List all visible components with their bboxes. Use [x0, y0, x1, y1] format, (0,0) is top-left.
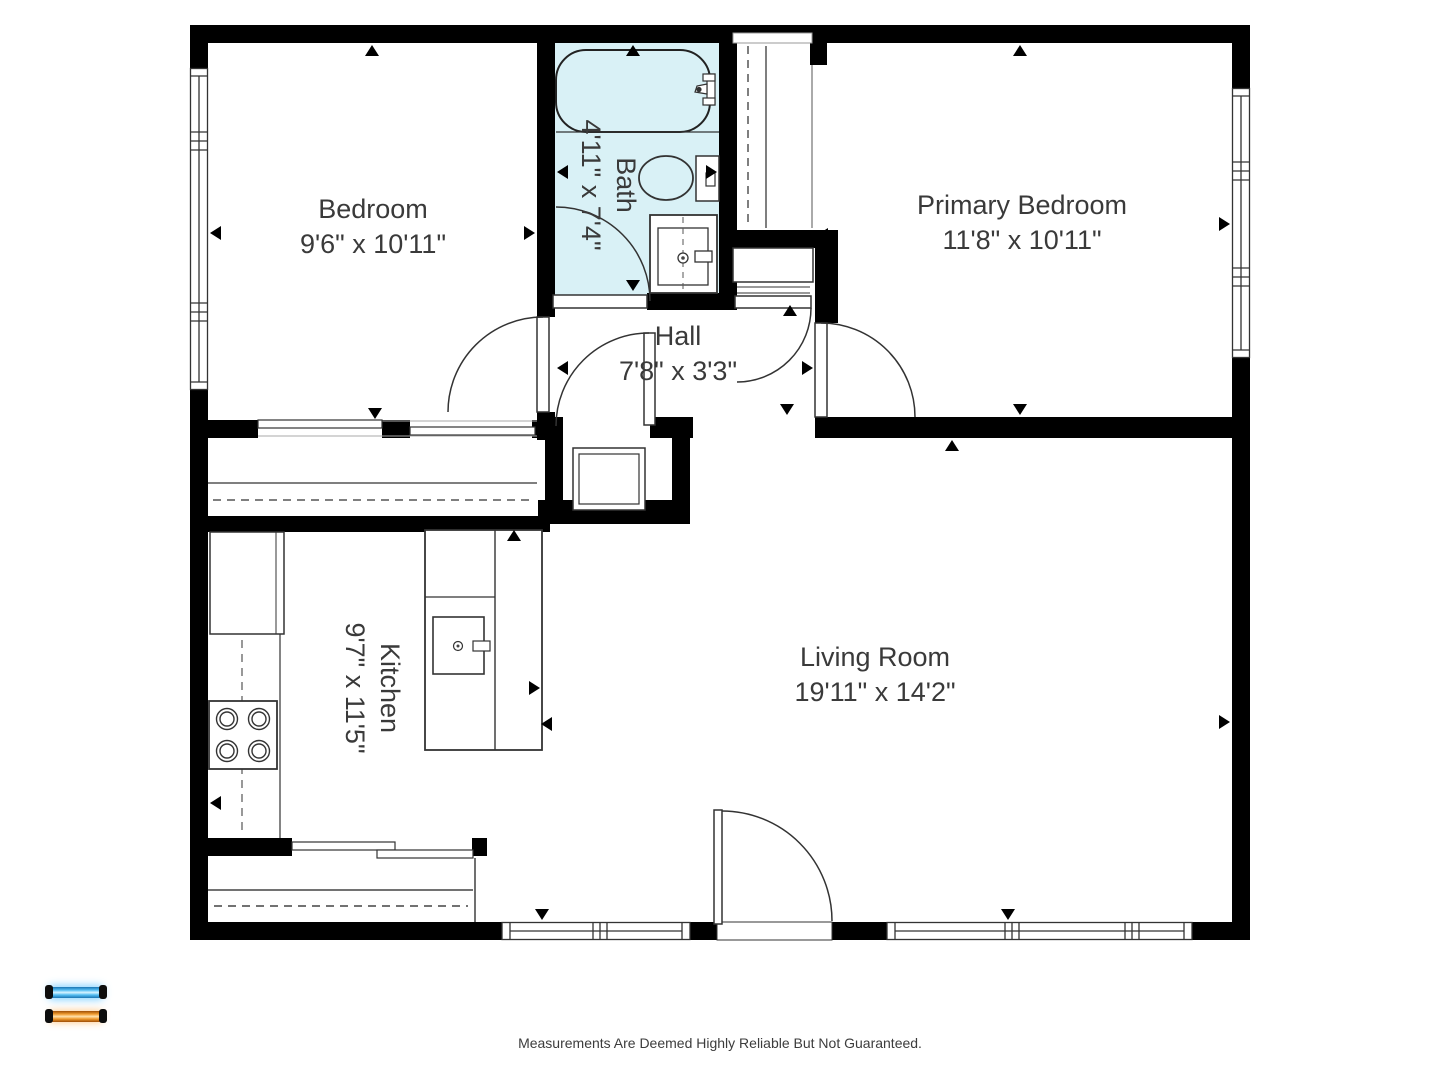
linen-closet [733, 248, 813, 282]
closet-details [748, 46, 812, 228]
wall-left-upper [190, 25, 208, 68]
wall-bottom-b [690, 922, 717, 940]
arrow-down-icon [535, 909, 549, 920]
arrow-down-icon [780, 404, 794, 415]
arrow-down-icon [1013, 404, 1027, 415]
arrow-right-icon [524, 226, 535, 240]
room-label-hall: Hall 7'8" x 3'3" [619, 319, 737, 389]
bedroom-door-arc [448, 317, 543, 412]
wall-closet-stub [810, 43, 827, 65]
pill-endcap [45, 1009, 53, 1023]
window-living-bottom-left [502, 922, 690, 940]
wall-bottom-c [832, 922, 887, 940]
arrow-up-icon [1013, 45, 1027, 56]
window-primary-right [1232, 89, 1250, 358]
primary-door-leaf [815, 323, 827, 417]
bath-door-leaf [553, 295, 647, 308]
wall-bath-bottom-b [647, 293, 737, 310]
room-dimensions: 9'6" x 10'11" [300, 227, 446, 262]
wall-primary-hall-upper [815, 230, 838, 323]
room-dimensions: 19'11" x 14'2" [794, 675, 955, 710]
patio-slider-panel-a [292, 842, 395, 850]
arrow-up-icon [365, 45, 379, 56]
bath-vanity [650, 215, 717, 293]
floor-selector [45, 985, 107, 1033]
floor-button-upper[interactable] [45, 985, 107, 999]
wall-patio-stub [472, 838, 487, 856]
arrow-right-icon [1219, 217, 1230, 231]
wall-bedroom-bath [537, 43, 555, 317]
bedroom-door-leaf [537, 317, 549, 412]
refrigerator [210, 532, 284, 634]
disclaimer-text: Measurements Are Deemed Highly Reliable … [518, 1035, 922, 1051]
stove [209, 701, 277, 769]
window-bedroom-left [190, 69, 208, 390]
room-label-primary-bedroom: Primary Bedroom 11'8" x 10'11" [917, 188, 1127, 258]
wall-bedroom-closet-stub-a [190, 420, 258, 438]
room-name: Living Room [794, 640, 955, 675]
arrow-left-icon [557, 361, 568, 375]
linen-shelf-lines [737, 287, 810, 293]
room-dimensions: 4'11" x 7'4" [573, 119, 608, 250]
arrow-right-icon [1219, 715, 1230, 729]
wall-patio-top [190, 838, 292, 856]
room-dimensions: 11'8" x 10'11" [917, 223, 1127, 258]
room-name: Bath [608, 119, 643, 250]
furnace-unit [573, 448, 645, 510]
wall-bath-bottom-a [537, 293, 553, 310]
arrow-left-icon [210, 796, 221, 810]
entry-door-leaf [714, 810, 722, 924]
floor-button-lower[interactable] [45, 1009, 107, 1023]
wall-bedroom-closet-stub-b [382, 420, 410, 438]
sliding-door-panel-a [258, 420, 382, 428]
patio-slider-panel-b [377, 850, 473, 858]
arrow-down-icon [1001, 909, 1015, 920]
room-label-bedroom: Bedroom 9'6" x 10'11" [300, 192, 446, 262]
room-dimensions: 7'8" x 3'3" [619, 354, 737, 389]
arrow-up-icon [945, 440, 959, 451]
floor-level-icon [50, 1011, 102, 1022]
entry-door-opening [717, 922, 832, 940]
entry-door-arc [722, 811, 832, 921]
arrow-left-icon [210, 226, 221, 240]
pill-endcap [45, 985, 53, 999]
kitchen-island [425, 530, 542, 750]
room-name: Kitchen [372, 622, 407, 753]
floorplan-viewer: Bedroom 9'6" x 10'11" Bath 4'11" x 7'4" … [0, 0, 1440, 1080]
linen-door-arc [737, 308, 811, 382]
sink-faucet [473, 641, 490, 651]
wall-top [190, 25, 1250, 43]
closet-wall-opening [733, 33, 812, 43]
wall-bottom-d [1192, 922, 1250, 940]
sliding-door-panel-b [410, 427, 535, 435]
wall-bottom-a [190, 922, 502, 940]
arrow-down-icon [368, 408, 382, 419]
linen-door-leaf [735, 296, 811, 308]
pill-endcap [99, 985, 107, 999]
wall-primary-bottom [815, 417, 1232, 438]
wall-left-lower [190, 390, 208, 940]
room-name: Hall [619, 319, 737, 354]
room-label-living-room: Living Room 19'11" x 14'2" [794, 640, 955, 710]
room-name: Primary Bedroom [917, 188, 1127, 223]
room-label-kitchen: Kitchen 9'7" x 11'5" [337, 622, 407, 753]
wall-right-lower [1232, 358, 1250, 940]
floor-level-icon [50, 987, 102, 998]
room-dimensions: 9'7" x 11'5" [337, 622, 372, 753]
room-label-bath: Bath 4'11" x 7'4" [573, 119, 643, 250]
pill-endcap [99, 1009, 107, 1023]
floorplan-drawing [0, 0, 1440, 1080]
window-living-bottom-right [887, 922, 1192, 940]
wall-closet-bottom [719, 230, 819, 248]
arrow-right-icon [802, 361, 813, 375]
wall-right-upper [1232, 25, 1250, 88]
primary-door-arc [821, 323, 915, 417]
room-name: Bedroom [300, 192, 446, 227]
